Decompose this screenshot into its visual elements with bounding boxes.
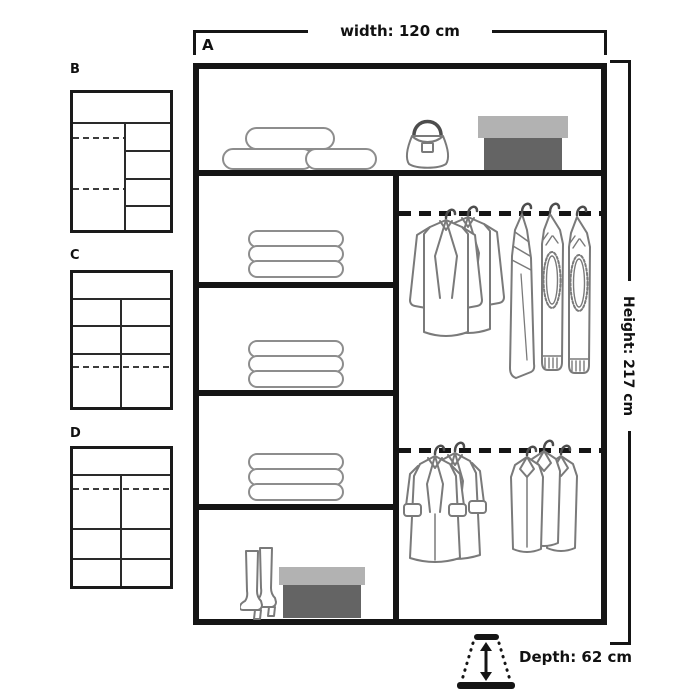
handbag-icon	[400, 108, 455, 170]
center-divider	[393, 176, 399, 619]
height-bracket-line-bottom	[628, 431, 631, 642]
variant-b-thumbnail	[70, 90, 173, 233]
storage-box-body	[484, 138, 562, 170]
depth-dimension: Depth: 62 cm	[455, 632, 700, 694]
variant-b-shelf-line	[126, 178, 170, 180]
shoe-box-body	[283, 585, 361, 618]
variant-d-thumbnail	[70, 446, 173, 589]
left-shelf-line	[199, 282, 395, 288]
variant-c-rail-line	[73, 366, 170, 368]
top-shelf-line	[199, 170, 601, 176]
depth-perspective-arrow-icon	[457, 634, 515, 690]
width-dimension-label: width: 120 cm	[308, 22, 492, 40]
width-dimension: width: 120 cm	[193, 20, 607, 56]
variant-b-divider	[124, 122, 126, 230]
folded-clothes-icon	[248, 453, 344, 501]
variant-c-thumbnail	[70, 270, 173, 410]
main-unit-outline	[193, 63, 607, 625]
variant-b-shelf-line	[126, 205, 170, 207]
left-shelf-line	[199, 390, 395, 396]
rolled-item	[245, 127, 335, 150]
variant-b-rail-line	[73, 188, 124, 190]
variant-c-shelf-line	[73, 325, 170, 327]
width-bracket-line-right	[492, 30, 604, 33]
height-bracket-line-top	[628, 63, 631, 281]
folded-clothes-icon	[248, 230, 344, 278]
variant-d-shelf-line	[73, 528, 170, 530]
variant-d-rail-line	[73, 488, 170, 490]
rolled-item	[222, 148, 314, 170]
height-dimension: Height: 217 cm	[610, 60, 646, 645]
height-dimension-label: Height: 217 cm	[612, 281, 644, 431]
variant-d-divider	[120, 474, 122, 586]
folded-clothes-icon	[248, 340, 344, 388]
variant-d-label: D	[70, 426, 81, 441]
hanging-sweaters-icon	[507, 200, 595, 400]
hanging-coats-icon	[402, 437, 497, 572]
variant-c-label: C	[70, 248, 80, 263]
width-bracket-right-tick	[604, 30, 607, 55]
shoe-box-lid	[279, 567, 365, 585]
boots-icon	[240, 546, 280, 620]
rolled-item	[305, 148, 377, 170]
wardrobe-layout-diagram: width: 120 cm A Height: 217 cm B C D	[0, 0, 700, 700]
storage-box-lid	[478, 116, 568, 138]
variant-b-rail-line	[73, 137, 124, 139]
width-bracket-line-left	[196, 30, 308, 33]
width-bracket-left-tick	[193, 30, 196, 55]
variant-c-shelf-line	[73, 353, 170, 355]
left-shelf-line	[199, 504, 395, 510]
variant-b-top-shelf-line	[73, 122, 170, 124]
folded-item	[248, 483, 344, 501]
hanging-jackets-icon	[404, 200, 509, 350]
depth-dimension-label: Depth: 62 cm	[519, 648, 632, 666]
variant-b-label: B	[70, 62, 80, 77]
folded-item	[248, 370, 344, 388]
variant-d-shelf-line	[73, 558, 170, 560]
hanging-shirts-icon	[505, 437, 593, 567]
folded-item	[248, 260, 344, 278]
variant-b-shelf-line	[126, 150, 170, 152]
main-unit-label: A	[202, 36, 214, 54]
